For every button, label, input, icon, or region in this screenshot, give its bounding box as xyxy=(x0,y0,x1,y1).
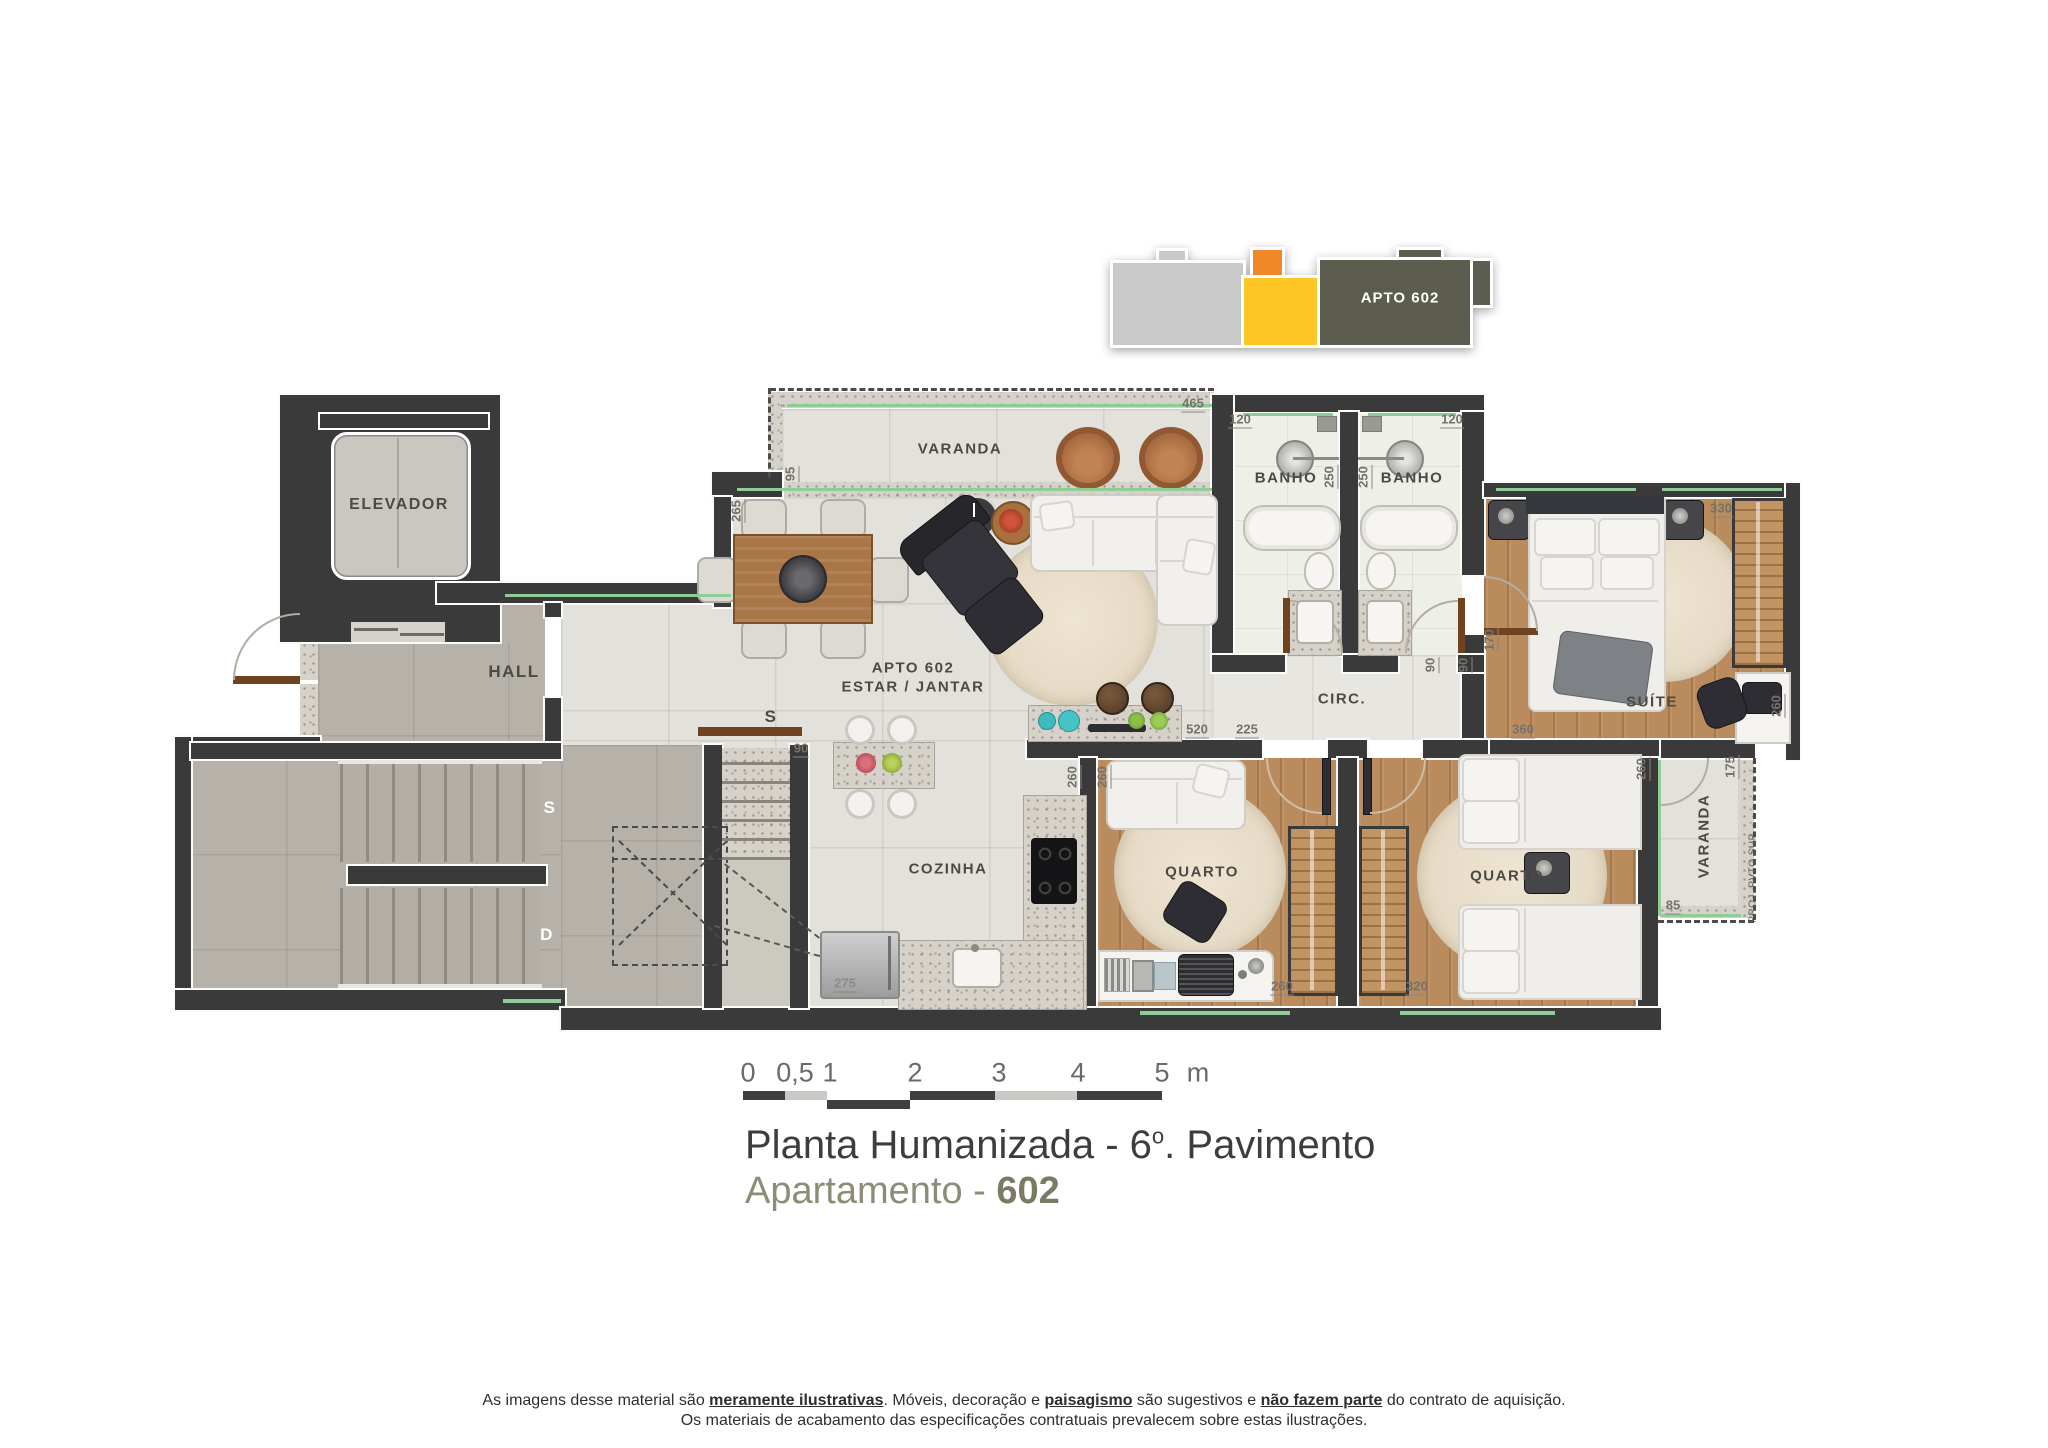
title-sup: o xyxy=(1152,1124,1164,1149)
suite-pillow xyxy=(1600,556,1654,590)
sofa-cushion-line xyxy=(1092,520,1094,566)
banho2-toilet xyxy=(1366,552,1396,590)
varanda2-label: VARANDA xyxy=(1696,794,1713,878)
hall-stair-wall xyxy=(191,743,561,759)
dim-260d: 260 xyxy=(1634,757,1651,781)
dim-120b: 120 xyxy=(1440,412,1464,429)
quarto2-label: QUARTO xyxy=(1470,868,1544,885)
banho1-label: BANHO xyxy=(1255,470,1318,487)
stair-rail-bottom xyxy=(338,984,542,988)
scalebar-2: 2 xyxy=(907,1058,922,1089)
stair-up-label: S xyxy=(544,798,557,818)
scalebar-4: 4 xyxy=(1070,1058,1085,1089)
varanda-label: VARANDA xyxy=(918,441,1002,458)
stair-flight-down xyxy=(340,888,540,986)
dining-chair xyxy=(869,557,909,603)
kitchen-stool xyxy=(845,789,875,819)
dim-320: 320 xyxy=(1405,979,1429,996)
dim-260a: 260 xyxy=(1065,765,1082,789)
banho1-door-leaf xyxy=(1283,598,1290,653)
dim-225: 225 xyxy=(1235,722,1259,739)
fridge-handle xyxy=(888,936,891,990)
dim-265: 265 xyxy=(729,499,746,523)
teal-plate xyxy=(1038,712,1056,730)
varanda-chair xyxy=(1139,427,1203,489)
dim-260-suite: 260 xyxy=(1769,694,1786,718)
dim-120a: 120 xyxy=(1228,412,1252,429)
dim-95: 95 xyxy=(783,466,800,482)
suite-pillow xyxy=(1540,556,1594,590)
suite-pillow xyxy=(1598,518,1660,556)
suite-window-b xyxy=(1662,488,1782,491)
intstair-tread-lines xyxy=(722,748,790,860)
keyplan-label: APTO 602 xyxy=(1361,290,1440,307)
disclaimer-line2: Os materiais de acabamento das especific… xyxy=(0,1412,2048,1430)
apto-label-line1: APTO 602 xyxy=(872,660,955,677)
proj-line-varanda2-bottom xyxy=(1658,920,1754,923)
left-outer-wall xyxy=(175,737,191,1010)
stair-rail-top xyxy=(338,760,542,764)
plan-subtitle: Apartamento - 602 xyxy=(745,1170,1060,1213)
quarto1-window xyxy=(1140,1011,1290,1015)
stair-landing-rail xyxy=(346,864,548,886)
keyplan: APTO 602 xyxy=(1110,240,1530,370)
scalebar-3: 3 xyxy=(991,1058,1006,1089)
sink-faucet xyxy=(971,944,979,952)
plan-title: Planta Humanizada - 6o. Pavimento xyxy=(745,1123,1375,1168)
sofa-pillow xyxy=(1038,500,1076,532)
dining-chair xyxy=(820,499,866,539)
suite-label: SUÍTE xyxy=(1626,694,1678,711)
disclaimer-bold: não fazem parte xyxy=(1261,1392,1383,1409)
green-bowl xyxy=(1150,712,1168,730)
bar-stool xyxy=(1096,682,1129,715)
suite-pillow xyxy=(1534,518,1596,556)
title-part1: Planta Humanizada - 6 xyxy=(745,1123,1152,1167)
desk-lamp xyxy=(1248,958,1264,974)
subtitle-label: Apartamento - xyxy=(745,1170,996,1212)
dim-85: 85 xyxy=(1665,898,1681,915)
sofa-cushion-line xyxy=(1155,520,1157,566)
quarto1-door-leaf xyxy=(1322,758,1331,815)
intstair-label: S xyxy=(765,707,778,727)
suite-duvet-fold xyxy=(1532,600,1658,602)
disclaimer-text: do contrato de aquisição. xyxy=(1382,1392,1565,1409)
scalebar-seg xyxy=(910,1091,995,1100)
intstair-right-wall xyxy=(790,745,808,1008)
dim-250b: 250 xyxy=(1356,465,1373,489)
varanda-window xyxy=(787,404,1212,407)
dim-90a: 90 xyxy=(1423,657,1440,673)
kitchen-stool xyxy=(887,789,917,819)
dining-chair xyxy=(820,619,866,659)
scalebar-seg xyxy=(1077,1091,1162,1100)
banho-top-wall xyxy=(1212,395,1484,412)
disclaimer-bold: meramente ilustrativas xyxy=(709,1392,883,1409)
bar-stool xyxy=(1141,682,1174,715)
banho2-door-leaf xyxy=(1458,598,1465,653)
proj-pvto-sup-label: PROJ. PVTO SUP. xyxy=(1748,831,1759,923)
nightstand-lamp xyxy=(1498,508,1514,524)
estar-sill-line xyxy=(737,488,1212,491)
desk-notepad xyxy=(1154,962,1176,990)
kitchen-stool xyxy=(887,715,917,745)
scalebar-0: 0 xyxy=(740,1058,755,1089)
hall-label: HALL xyxy=(488,662,539,682)
nightstand-lamp xyxy=(1672,508,1688,524)
plant-succulent xyxy=(882,753,902,773)
bed-pillow xyxy=(1462,908,1520,952)
proj-line-top xyxy=(770,388,1214,391)
desk-decor-stripes xyxy=(1104,958,1130,992)
elevator-door-panel-b xyxy=(400,633,444,636)
banho2-label: BANHO xyxy=(1381,470,1444,487)
banho-right-wall xyxy=(1462,412,1484,575)
banho1-toilet xyxy=(1304,552,1334,590)
disclaimer-bold: paisagismo xyxy=(1044,1392,1132,1409)
bed-fold-line xyxy=(1524,908,1526,992)
suite-window-a xyxy=(1496,488,1636,491)
dim-250a: 250 xyxy=(1322,465,1339,489)
circ-label: CIRC. xyxy=(1318,691,1366,708)
disclaimer-text: As imagens desse material são xyxy=(482,1392,709,1409)
suite-wardrobe-rail xyxy=(1756,502,1760,662)
stair-down-label: D xyxy=(540,925,554,945)
dining-chair xyxy=(741,499,787,539)
scalebar-seg xyxy=(743,1091,785,1100)
apto-label-line2: ESTAR / JANTAR xyxy=(842,679,985,696)
banho-bottom-wall-a xyxy=(1212,655,1285,672)
floorplan-page: APTO 602 xyxy=(0,0,2048,1448)
elevator-door-gap xyxy=(351,622,445,642)
subtitle-number: 602 xyxy=(996,1170,1059,1212)
dim-90b: 90 xyxy=(1456,657,1473,673)
dim-90c: 90 xyxy=(793,741,809,758)
stair-flight-up xyxy=(340,764,540,862)
disclaimer-text: . Móveis, decoração e xyxy=(883,1392,1044,1409)
hall-estar-wall-top xyxy=(545,603,561,617)
mid-wall-tcap xyxy=(1328,740,1367,758)
scalebar-unit: m xyxy=(1187,1058,1210,1089)
scalebar-05: 0,5 xyxy=(776,1058,814,1089)
scalebar-1: 1 xyxy=(822,1058,837,1089)
banho2-shower-arm xyxy=(1358,457,1404,460)
title-part2: . Pavimento xyxy=(1164,1123,1375,1167)
banho1-tub xyxy=(1243,505,1341,551)
quarto1-wardrobe-rail xyxy=(1310,830,1314,990)
scalebar-seg xyxy=(995,1091,1077,1100)
scalebar-seg xyxy=(827,1100,910,1109)
bed-pillow xyxy=(1462,800,1520,844)
varanda-chair xyxy=(1056,427,1120,489)
intstair-lower xyxy=(722,860,790,1006)
desk-mouse xyxy=(1238,970,1247,979)
hall-estar-wall-bottom xyxy=(545,698,561,745)
plant-pink xyxy=(856,753,876,773)
entrance-door-arc xyxy=(233,613,300,680)
sofa-pillow xyxy=(1181,538,1216,577)
stair-window xyxy=(503,999,561,1003)
hall-floor-b xyxy=(500,603,545,643)
quarto2-window xyxy=(1400,1011,1555,1015)
banho1-shelf xyxy=(1317,416,1337,432)
elevador-label: ELEVADOR xyxy=(349,496,449,514)
scalebar-5: 5 xyxy=(1154,1058,1169,1089)
elevator-counterweight xyxy=(318,412,490,430)
plant-red xyxy=(999,509,1023,533)
hall-floor xyxy=(318,640,545,745)
dim-330: 330 xyxy=(1709,501,1733,518)
inter-quarto-wall xyxy=(1338,758,1357,1010)
disclaimer-text: são sugestivos e xyxy=(1132,1392,1260,1409)
banho1-window xyxy=(1243,413,1333,416)
quarto2-wardrobe-rail xyxy=(1381,830,1385,990)
suite-headboard xyxy=(1526,496,1664,514)
quarto1-sofa-cushion xyxy=(1176,782,1178,824)
bed-fold-line xyxy=(1524,758,1526,842)
dim-360: 360 xyxy=(1511,722,1535,739)
banho-bottom-wall-b xyxy=(1343,655,1398,672)
keyplan-gray-shape xyxy=(1110,260,1246,348)
intstair-handrail xyxy=(698,727,802,736)
cooktop xyxy=(1031,838,1077,904)
kitchen-stool xyxy=(845,715,875,745)
banho2-shelf xyxy=(1362,416,1382,432)
dim-520: 520 xyxy=(1185,722,1209,739)
projection-step-line xyxy=(612,858,724,860)
quarto1-laptop xyxy=(1178,954,1234,996)
dining-chair xyxy=(741,619,787,659)
dim-260b: 260 xyxy=(1095,765,1112,789)
clock-hand xyxy=(973,503,975,517)
dim-465: 465 xyxy=(1181,396,1205,413)
table-centerpiece xyxy=(779,555,827,603)
estar-step-wall-h xyxy=(712,472,782,497)
green-bowl xyxy=(1128,712,1145,729)
desk-photo-frame xyxy=(1132,960,1154,992)
dim-170: 170 xyxy=(1482,628,1499,652)
kitchen-sink xyxy=(952,948,1002,988)
keyplan-yellow-shape xyxy=(1241,275,1322,348)
dim-260c: 260 xyxy=(1270,979,1294,996)
disclaimer-line1: As imagens desse material são meramente … xyxy=(0,1392,2048,1410)
dim-275: 275 xyxy=(833,976,857,993)
banho1-shower-arm xyxy=(1293,457,1339,460)
quarto1-label: QUARTO xyxy=(1165,864,1239,881)
banho1-sink xyxy=(1296,600,1334,644)
proj-line-left xyxy=(768,388,771,478)
cozinha-label: COZINHA xyxy=(909,861,988,878)
bed-pillow xyxy=(1462,950,1520,994)
hall-door-jamb-bottom xyxy=(300,684,318,740)
hall-window xyxy=(505,594,731,597)
dim-175: 175 xyxy=(1723,755,1740,779)
scalebar-seg xyxy=(785,1091,827,1100)
elevator-door-panel-a xyxy=(354,628,398,631)
banho2-tub xyxy=(1360,505,1458,551)
banho2-sink xyxy=(1366,600,1404,644)
hall-top-wall xyxy=(437,583,731,603)
teal-plate xyxy=(1058,710,1080,732)
banho-center-wall xyxy=(1340,412,1358,655)
bed-pillow xyxy=(1462,758,1520,802)
mid-wall-a xyxy=(1027,740,1262,758)
